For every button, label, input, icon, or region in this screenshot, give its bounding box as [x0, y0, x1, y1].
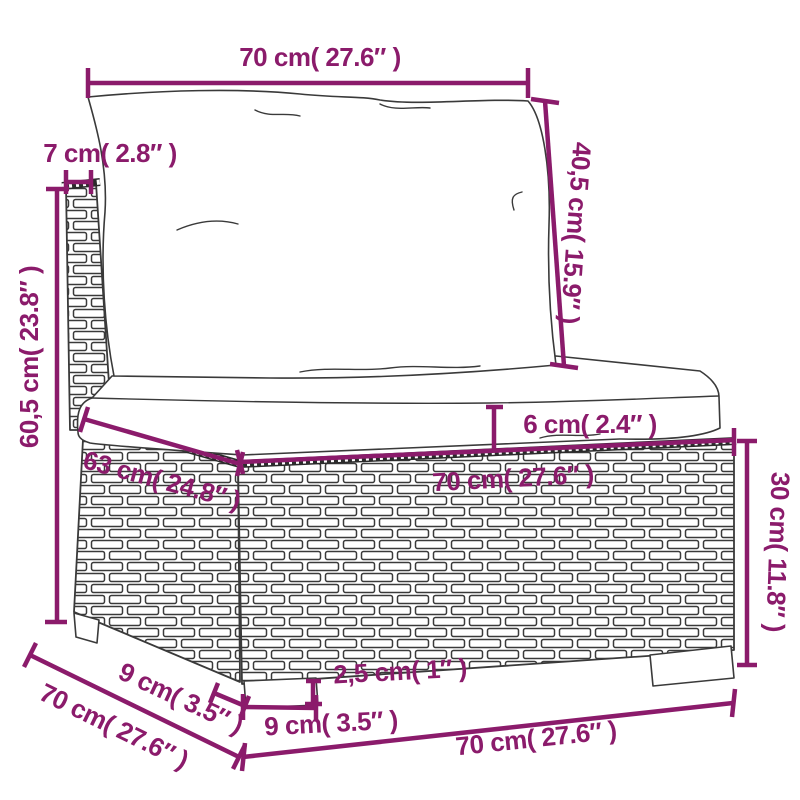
dimension-diagram: 70 cm( 27.6″ ) 7 cm( 2.8″ ) 60,5 cm( 23.…: [0, 0, 800, 800]
back-cushion: [88, 90, 556, 378]
dim-label-back-frame-thickness: 7 cm( 2.8″ ): [43, 140, 177, 166]
dim-base-height-line: [737, 441, 757, 665]
dim-label-seat-width: 70 cm( 27.6″ ): [432, 461, 595, 495]
dim-label-back-top-width: 70 cm( 27.6″ ): [239, 44, 401, 70]
dim-label-back-height: 60,5 cm( 23.8″ ): [16, 266, 42, 448]
dim-label-seat-cushion-thickness: 6 cm( 2.4″ ): [523, 411, 657, 437]
dim-label-base-height: 30 cm( 11.8″ ): [762, 472, 794, 633]
dim-label-foot-height: 2,5 cm( 1″ ): [333, 655, 468, 688]
dim-label-front-foot-width: 9 cm( 3.5″ ): [264, 707, 399, 740]
dim-back-height-line: [45, 189, 69, 622]
